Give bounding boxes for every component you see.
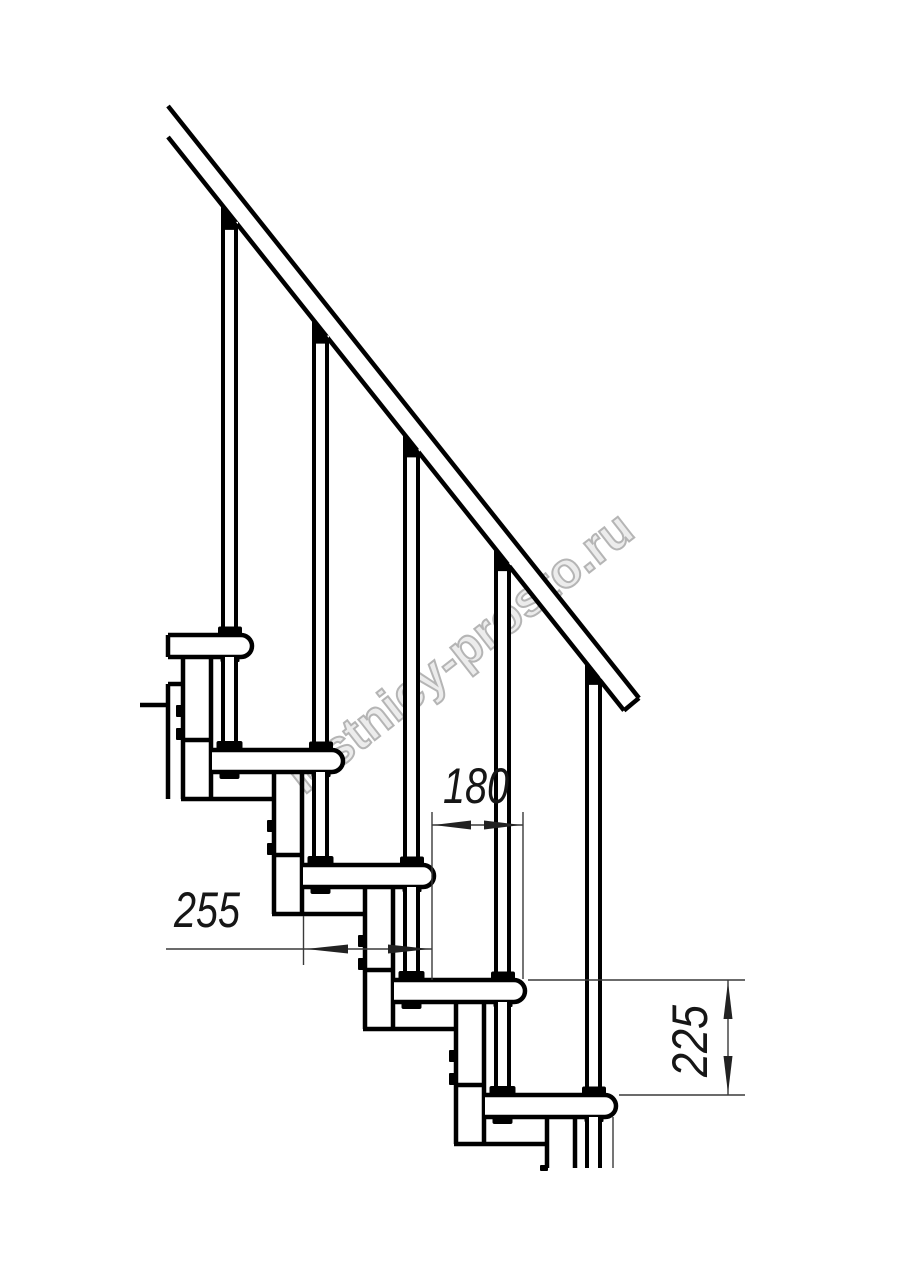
bolt: [267, 820, 275, 832]
drawing-page: lestnicy-prosto.ru 255180225: [0, 0, 914, 1280]
tread: [394, 980, 525, 1002]
dimension-label-tread-depth: 255: [173, 882, 240, 938]
dimension-arrow: [724, 1056, 733, 1094]
bolt: [540, 1165, 548, 1171]
tread-top-connector: [218, 627, 242, 636]
tread-top-connector: [491, 972, 515, 981]
dimension-arrow: [434, 821, 472, 830]
tread-top-connector: [309, 742, 333, 751]
tread-top-connector: [582, 1087, 606, 1096]
staircase-technical-drawing: 255180225: [0, 0, 914, 1280]
tread: [303, 865, 434, 887]
bolt: [449, 1073, 457, 1085]
dimension-label-step-rise: 225: [662, 1005, 718, 1078]
bolt: [358, 935, 366, 947]
tread: [168, 635, 252, 657]
bolt: [176, 728, 184, 740]
dimension-arrow: [306, 945, 348, 954]
bolt: [176, 705, 184, 717]
dimension-label-step-run: 180: [443, 758, 509, 814]
dimension-arrow: [724, 982, 733, 1020]
bolt: [449, 1050, 457, 1062]
bolt: [267, 843, 275, 855]
tread: [485, 1095, 616, 1117]
tread: [212, 750, 343, 772]
tread-top-connector: [400, 857, 424, 866]
bolt: [358, 958, 366, 970]
